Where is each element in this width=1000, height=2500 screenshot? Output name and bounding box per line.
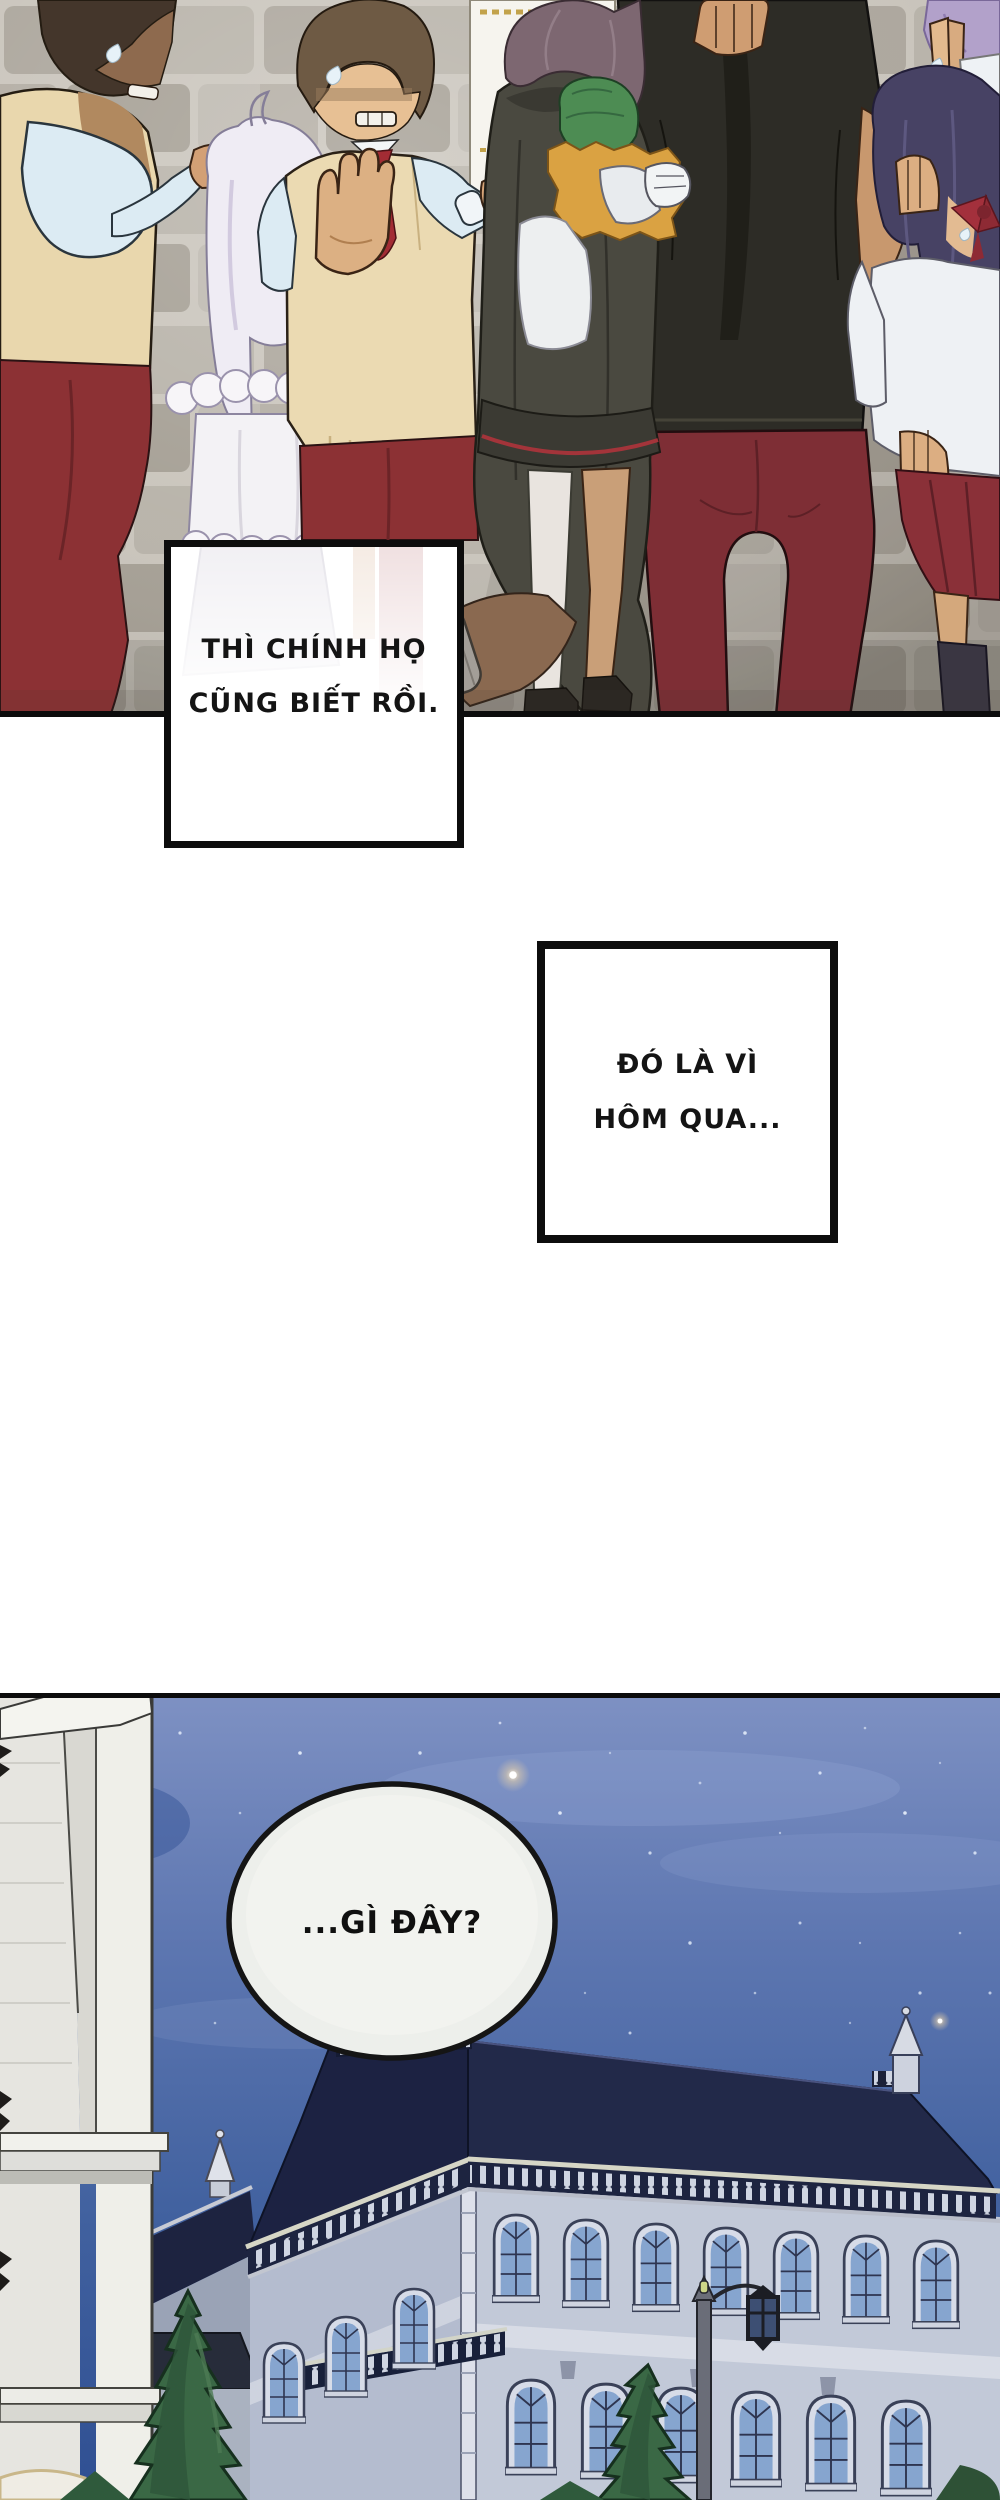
- dialogue-line: ĐÓ LÀ VÌ: [617, 1037, 758, 1092]
- crowd-scene-art: [0, 0, 1000, 717]
- speech-bubble-text: ...GÌ ĐÂY?: [230, 1787, 554, 2059]
- dialogue-box-2: ĐÓ LÀ VÌ HÔM QUA...: [537, 941, 838, 1243]
- dialogue-line: THÌ CHÍNH HỌ: [189, 623, 440, 677]
- panel-border-top: [0, 1693, 1000, 1698]
- comic-page: THÌ CHÍNH HỌ CŨNG BIẾT RỒI. ĐÓ LÀ VÌ HÔM…: [0, 0, 1000, 2500]
- dialogue-line: CŨNG BIẾT RỒI.: [189, 677, 440, 731]
- dialogue-line: HÔM QUA...: [593, 1092, 781, 1147]
- panel-crowd-scene: [0, 0, 1000, 717]
- dialogue-box-1: THÌ CHÍNH HỌ CŨNG BIẾT RỒI.: [164, 540, 464, 848]
- panel-border-bottom: [0, 711, 1000, 717]
